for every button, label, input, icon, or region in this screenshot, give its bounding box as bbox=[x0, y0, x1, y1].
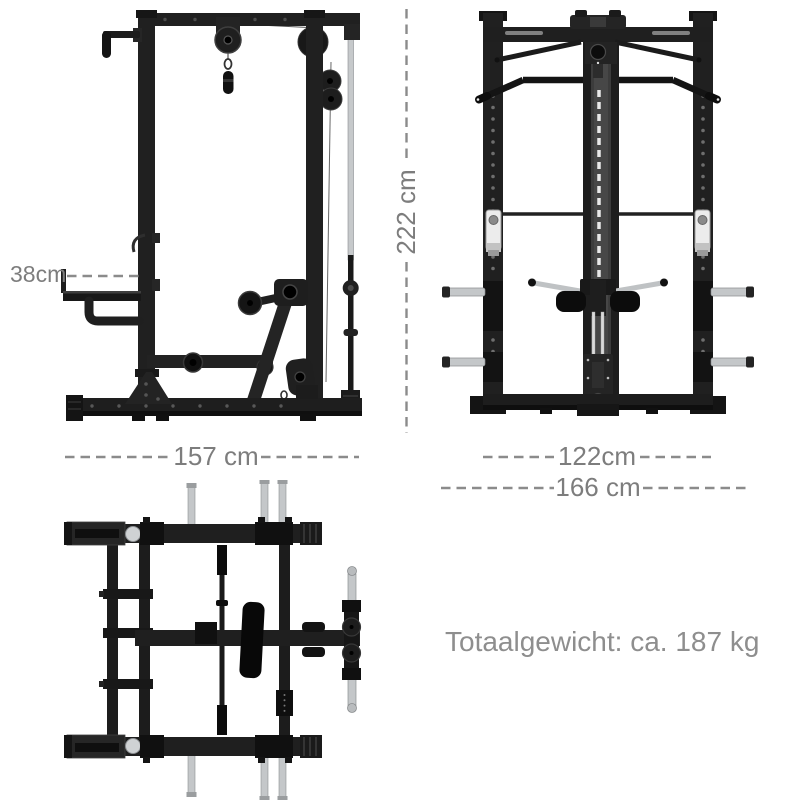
side-view-drawing bbox=[60, 5, 370, 425]
inner-width-label: 122cm bbox=[537, 441, 657, 472]
total-weight-label: Totaalgewicht: ca. 187 kg bbox=[445, 626, 759, 658]
mid-beam bbox=[147, 353, 273, 375]
seat-assembly bbox=[61, 269, 141, 321]
pull-up-handle bbox=[102, 28, 142, 58]
depth-label: 157 cm bbox=[156, 441, 276, 472]
product-dimension-diagram: { "annotations": { "seat_height": {"labe… bbox=[0, 0, 800, 800]
outer-width-label: 166 cm bbox=[533, 472, 663, 503]
top-pulley-with-handle bbox=[215, 17, 241, 94]
bottom-beam-front bbox=[470, 394, 726, 416]
total-height-label: 222 cm bbox=[391, 142, 419, 282]
top-view-drawing bbox=[60, 480, 370, 800]
seat-pad-top-view bbox=[239, 601, 265, 678]
seat-pads-front bbox=[528, 279, 668, 317]
lever-handle-assembly bbox=[342, 567, 361, 713]
guide-rod bbox=[341, 20, 360, 416]
top-crossbeam bbox=[483, 10, 713, 42]
seat-height-label: 38cm bbox=[10, 261, 66, 288]
front-view-drawing bbox=[440, 5, 760, 420]
